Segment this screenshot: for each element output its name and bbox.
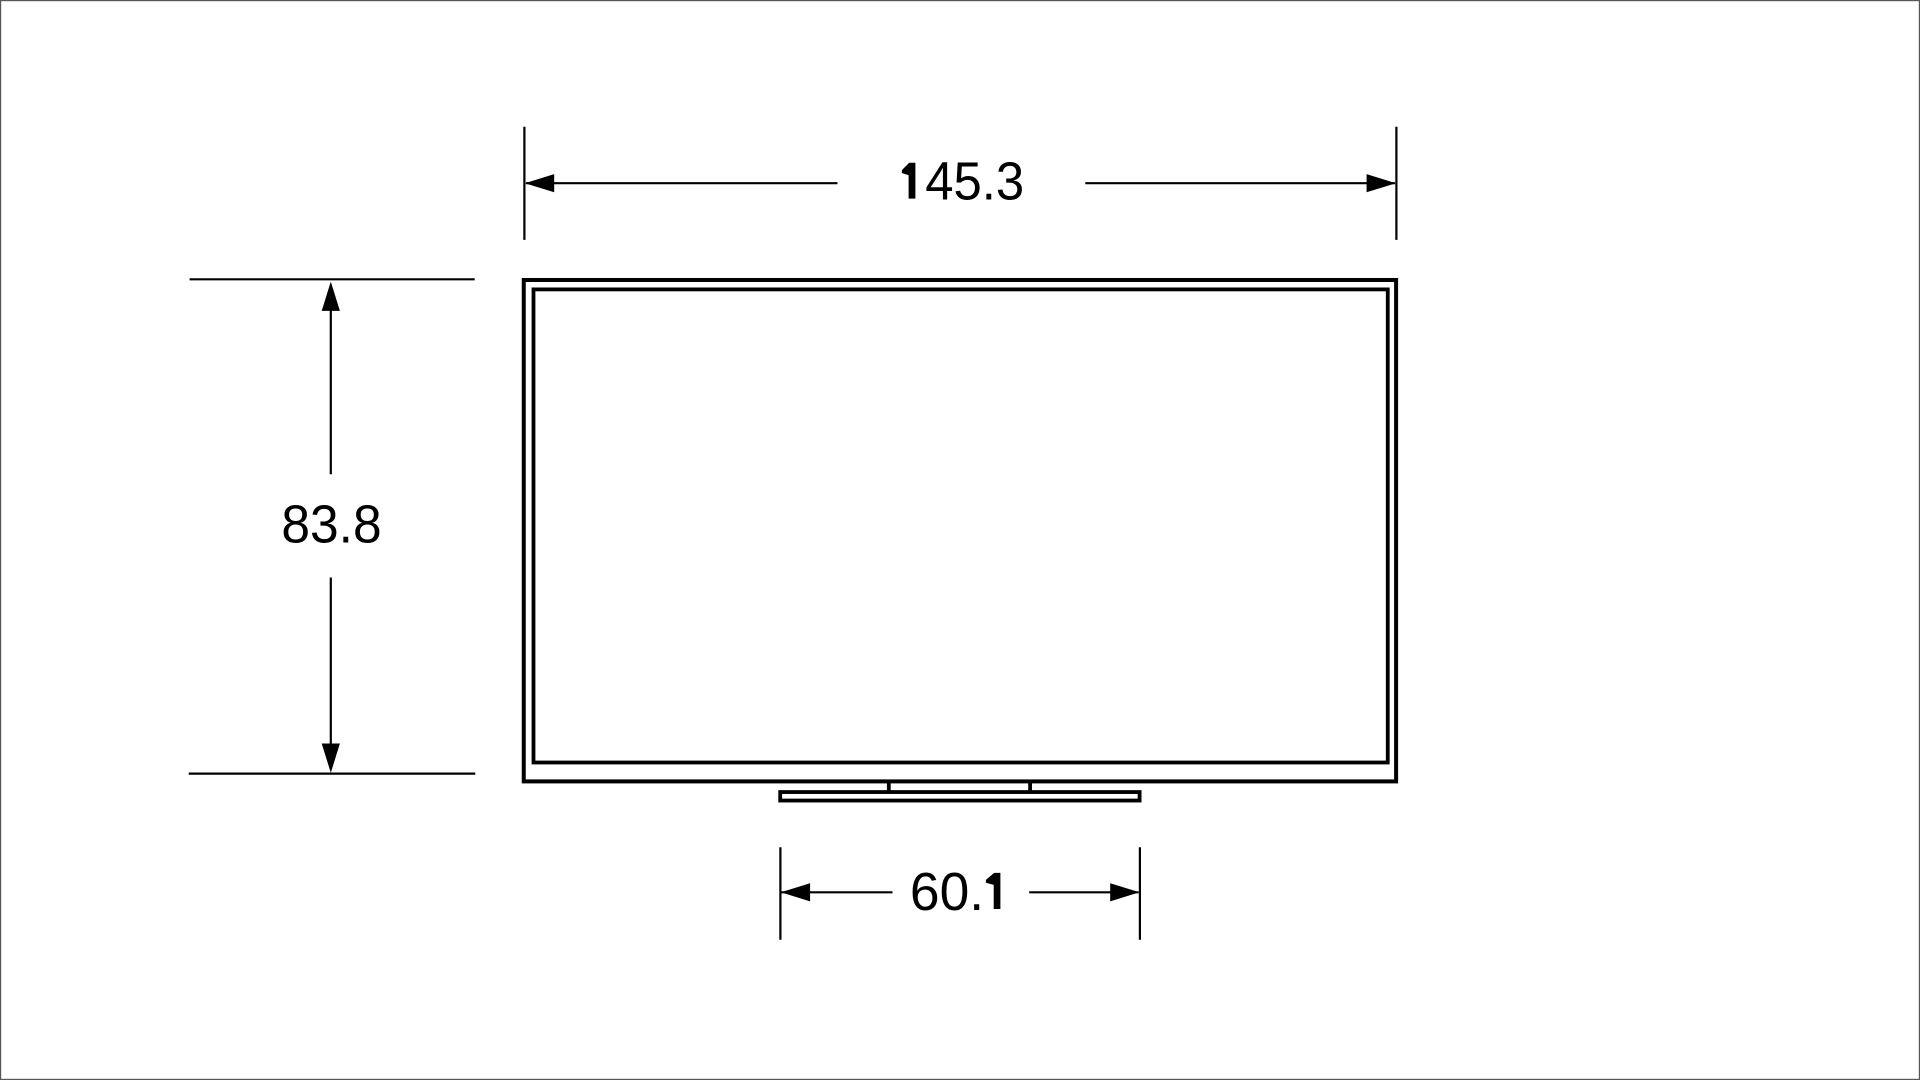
svg-text:83.8: 83.8 bbox=[281, 495, 381, 555]
svg-text:45.3: 45.3 bbox=[925, 152, 1024, 212]
svg-text:60.: 60. bbox=[910, 862, 984, 922]
